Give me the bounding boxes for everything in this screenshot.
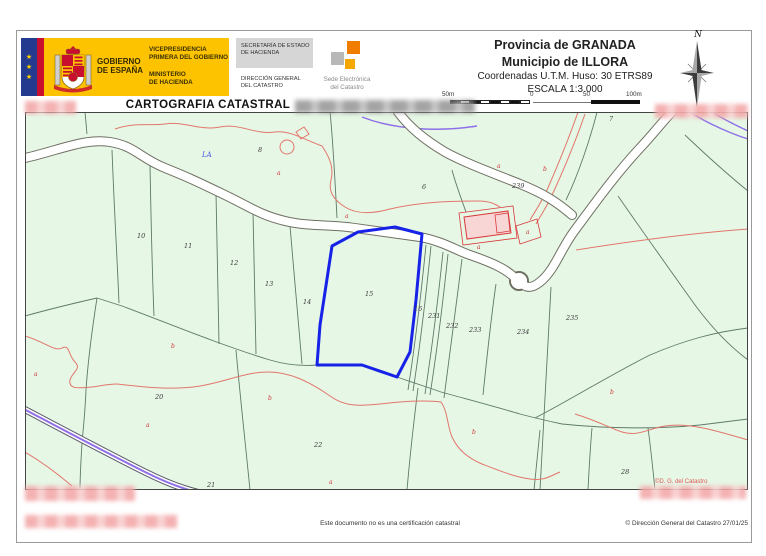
subparcel-letter-label: b [610, 389, 614, 396]
subparcel-letter-label: b [171, 343, 175, 350]
cadastral-map: LA 7862391011121314151623123223323423520… [25, 112, 748, 490]
map-background [25, 112, 748, 490]
scalebar-tick-label: 0 [530, 91, 534, 98]
parcel-number-label: 21 [206, 481, 215, 489]
redacted-parcel-reference [295, 100, 475, 113]
province-title: Provincia de GRANADA [455, 38, 675, 52]
parcel-number-label: 28 [620, 468, 629, 476]
redacted-reference [25, 515, 177, 528]
parcel-number-label: 6 [422, 183, 426, 191]
redacted-reference [25, 486, 135, 501]
parcel-number-label: 14 [303, 298, 311, 306]
flag-red-stripe [37, 38, 44, 96]
compass-rose-icon [675, 38, 721, 110]
scalebar-tick-label: 100m [626, 91, 642, 98]
parcel-number-label: 232 [445, 322, 458, 330]
parcel-number-label: 234 [516, 328, 529, 336]
parcel-number-label: 233 [468, 326, 481, 334]
redacted-reference [640, 486, 746, 499]
subparcel-letter-label: b [472, 429, 476, 436]
document-title: CARTOGRAFIA CATASTRAL [118, 99, 298, 111]
municipality-title: Municipio de ILLORA [455, 55, 675, 69]
sede-logo-amber-square-icon [345, 59, 355, 69]
eu-flag-strip: ★ ★ ★ [21, 38, 37, 96]
road-surface [511, 273, 527, 289]
star-icon: ★ [26, 64, 32, 71]
sede-logo-orange-square-icon [347, 41, 360, 54]
scale-label: ESCALA 1:3.000 [455, 84, 675, 95]
parcel-number-label: 10 [137, 232, 145, 240]
subparcel-letter-label: a [34, 371, 38, 378]
parcel-number-label: 12 [230, 259, 238, 267]
parcel-number-label: 13 [265, 280, 273, 288]
scale-bar: 50m 0 50 100m [450, 99, 640, 105]
sede-electronica-label: Sede Electrónica del Catastro [316, 76, 378, 91]
map-name-labels: LA [201, 151, 212, 159]
subparcel-letter-label: a [526, 229, 530, 236]
subparcel-letter-label: a [345, 213, 349, 220]
disclaimer-text: Este documento no es una certificación c… [260, 520, 520, 527]
copyright-text: © Dirección General del Catastro 27/01/2… [540, 520, 748, 527]
catastro-watermark: ©D. G. del Catastro [655, 478, 708, 485]
coat-of-arms [52, 43, 94, 93]
star-icon: ★ [26, 54, 32, 61]
sede-logo-gray-square-icon [331, 52, 344, 65]
ministry-label: VICEPRESIDENCIA PRIMERA DEL GOBIERNO MIN… [149, 46, 229, 86]
parcel-number-label: 11 [184, 242, 192, 250]
subparcel-letter-label: b [268, 395, 272, 402]
subparcel-letter-label: a [146, 422, 150, 429]
parcel-number-label: 8 [258, 146, 262, 154]
redacted-reference [25, 101, 76, 114]
scalebar-tick-label: 50 [583, 91, 590, 98]
secretaria-de-estado-label: SECRETARÍA DE ESTADO DE HACIENDA [236, 38, 313, 68]
cadastral-document: ★ ★ ★ GOBIERNO DE ESPAÑA VICEPRESIDENCIA… [0, 0, 766, 556]
parcel-number-label: 231 [427, 312, 440, 320]
parcel-number-label: 239 [511, 182, 524, 190]
direccion-general-catastro-label: DIRECCIÓN GENERAL DEL CATASTRO [241, 76, 318, 90]
parcel-number-label: 22 [313, 441, 322, 449]
redacted-reference [655, 104, 748, 118]
subparcel-letter-label: a [329, 479, 333, 486]
scalebar-tick-label: 50m [442, 91, 454, 98]
parcel-number-label: 235 [565, 314, 578, 322]
stream-name-label: LA [201, 151, 212, 159]
parcel-number-label: 20 [154, 393, 163, 401]
subparcel-letter-label: a [277, 170, 281, 177]
utm-coordinates-label: Coordenadas U.T.M. Huso: 30 ETRS89 [455, 71, 675, 82]
subparcel-letter-label: a [497, 163, 501, 170]
subparcel-letter-label: b [543, 166, 547, 173]
star-icon: ★ [26, 74, 32, 81]
subparcel-letter-label: a [477, 244, 481, 251]
parcel-number-label: 15 [365, 290, 373, 298]
parcel-number-label: 16 [414, 305, 422, 313]
